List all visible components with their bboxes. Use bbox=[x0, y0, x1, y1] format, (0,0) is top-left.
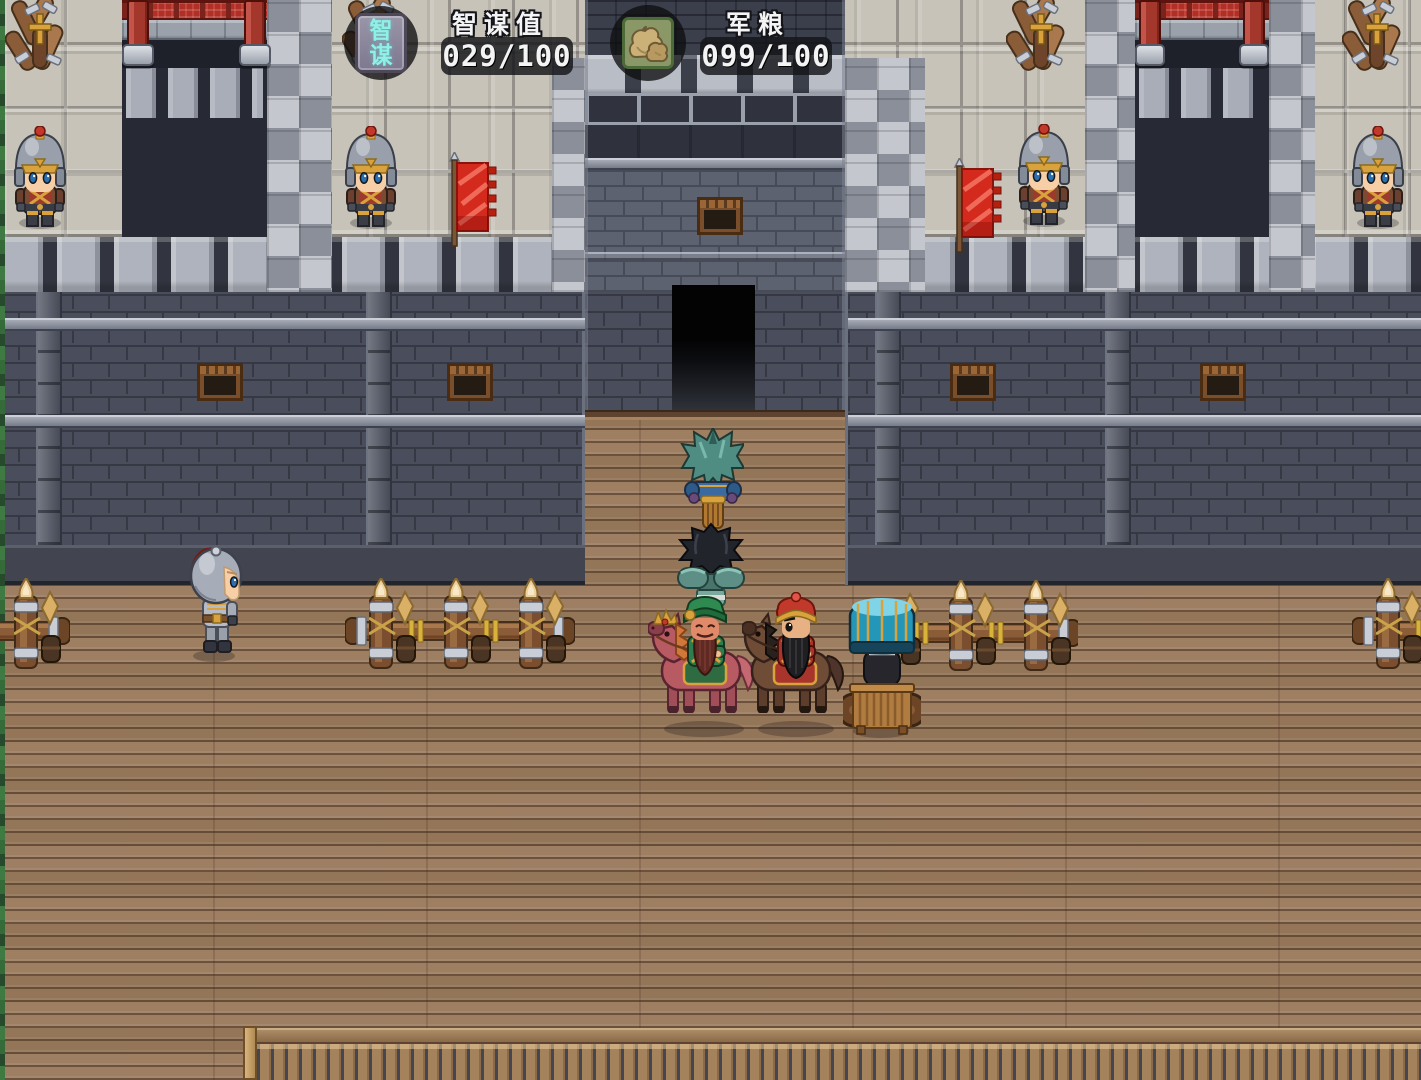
strategy-badge-char-bottom: 谋 bbox=[358, 44, 404, 69]
spiked-barricade bbox=[1352, 578, 1421, 678]
gatehouse-face bbox=[585, 170, 845, 292]
spiked-barricade bbox=[0, 578, 70, 678]
strategy-badge-char-top: 智 bbox=[358, 19, 404, 44]
gate-doorway bbox=[672, 285, 755, 415]
wall-ledge bbox=[848, 415, 1421, 428]
palisade-post bbox=[243, 1026, 257, 1080]
red-hat-general-on-horse bbox=[742, 592, 854, 738]
gate-path-edge bbox=[585, 410, 845, 420]
knight-npc bbox=[183, 542, 247, 666]
provisions-badge bbox=[610, 5, 686, 81]
guard-npc bbox=[1016, 124, 1072, 228]
wall-hatch-window bbox=[1200, 363, 1246, 401]
grass-edge bbox=[0, 0, 5, 1080]
spiked-barricade bbox=[345, 578, 575, 678]
castle-wall-right bbox=[845, 292, 1421, 585]
porter-with-chest-and-cart bbox=[843, 588, 921, 740]
castle-wall-left bbox=[0, 292, 585, 585]
hud: 智 谋 智谋值 029/100 军粮 099/100 bbox=[0, 0, 1421, 100]
strategy-badge: 智 谋 bbox=[344, 6, 418, 80]
wall-base bbox=[848, 545, 1421, 585]
provisions-value: 099/100 bbox=[700, 37, 832, 75]
red-flag bbox=[946, 158, 1004, 254]
strategy-label: 智谋值 bbox=[452, 11, 548, 38]
spiked-barricade bbox=[898, 580, 1078, 680]
wall-hatch-window bbox=[950, 363, 996, 401]
gatehouse-ledge-thin bbox=[585, 252, 845, 260]
palisade-fence bbox=[243, 1044, 1421, 1080]
wall-hatch-window bbox=[447, 363, 493, 401]
wall-ledge bbox=[848, 318, 1421, 331]
gatehouse-dark-band bbox=[585, 125, 845, 158]
wall-hatch-window bbox=[197, 363, 243, 401]
wall-hatch-window bbox=[697, 197, 743, 235]
game-viewport[interactable]: 智 谋 智谋值 029/100 军粮 099/100 bbox=[0, 0, 1421, 1080]
wall-ledge bbox=[0, 415, 585, 428]
guard-npc bbox=[343, 126, 399, 230]
wall-ledge bbox=[0, 318, 585, 331]
strategy-value: 029/100 bbox=[441, 37, 573, 75]
strategy-badge-plaque: 智 谋 bbox=[355, 13, 407, 73]
palisade-beam bbox=[243, 1028, 1421, 1044]
red-flag bbox=[441, 152, 499, 248]
guard-npc bbox=[1350, 126, 1406, 230]
gatehouse-ledge bbox=[585, 158, 845, 170]
guard-npc bbox=[12, 126, 68, 230]
provisions-label: 军粮 bbox=[726, 11, 790, 38]
grain-sacks-icon bbox=[622, 17, 674, 69]
teal-haired-character bbox=[680, 428, 744, 534]
